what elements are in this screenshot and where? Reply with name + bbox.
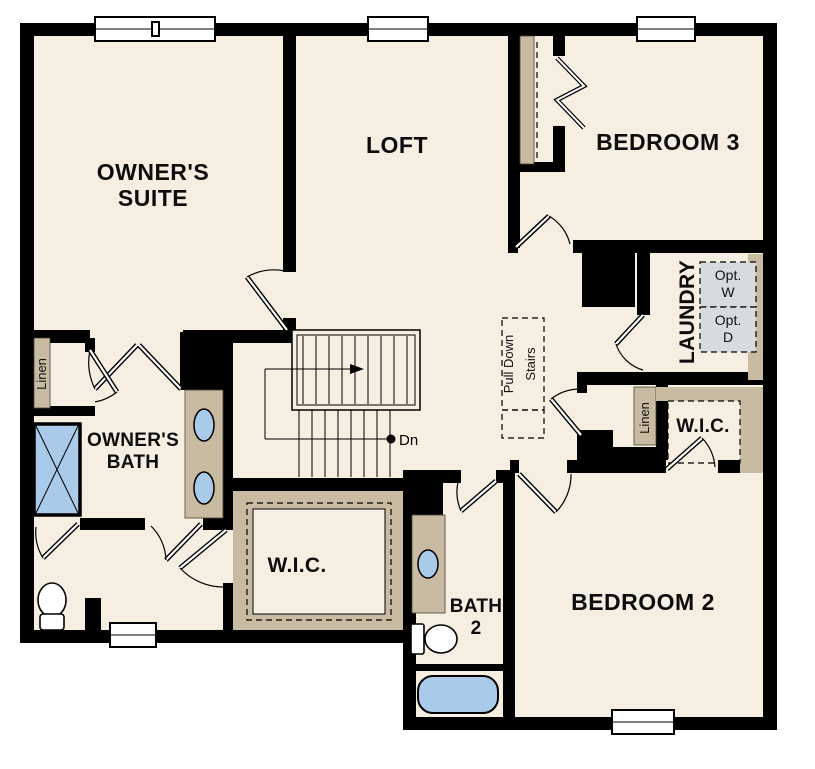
laundry-appliances: Opt. W Opt. D bbox=[700, 262, 756, 352]
linen-bath-label: Linen bbox=[34, 358, 49, 390]
window-icon bbox=[95, 17, 215, 41]
bedroom3-closet-shelf bbox=[520, 36, 534, 164]
pull-down-stairs-label-line1: Pull Down bbox=[501, 335, 516, 394]
window-icon bbox=[637, 17, 695, 41]
bedroom3-label: BEDROOM 3 bbox=[596, 129, 740, 155]
washer-option-box: Opt. W bbox=[700, 262, 756, 307]
laundry-label: LAUNDRY bbox=[676, 260, 699, 364]
window-icon bbox=[612, 710, 674, 734]
wic-owners-label: W.I.C. bbox=[268, 554, 327, 577]
owners-bath-label-line2: BATH bbox=[107, 452, 160, 473]
linen-hall-label: Linen bbox=[637, 402, 652, 434]
bath2-label-line2: 2 bbox=[471, 618, 482, 639]
washer-option-label-line1: Opt. bbox=[715, 267, 741, 283]
owners-suite-label-line2: SUITE bbox=[118, 185, 188, 211]
owners-bath-label-line1: OWNER'S bbox=[87, 430, 179, 451]
floor-plan-svg: Dn Pull Down Stairs bbox=[0, 0, 815, 769]
toilet-icon bbox=[38, 583, 66, 630]
sink-basin-icon bbox=[194, 409, 214, 441]
bath2-label-line1: BATH bbox=[450, 596, 503, 617]
loft-label: LOFT bbox=[366, 132, 428, 158]
owners-suite-label-line1: OWNER'S bbox=[97, 159, 209, 185]
window-icon bbox=[368, 17, 428, 41]
floor-plan: Dn Pull Down Stairs bbox=[0, 0, 815, 769]
dryer-option-label-line1: Opt. bbox=[715, 312, 741, 328]
shower-stall-icon bbox=[34, 424, 80, 515]
bathtub-icon bbox=[418, 676, 498, 713]
washer-option-label-line2: W bbox=[721, 284, 735, 300]
dryer-option-label-line2: D bbox=[723, 329, 733, 345]
wic-bedroom2-label: W.I.C. bbox=[676, 416, 730, 437]
dryer-option-box: Opt. D bbox=[700, 307, 756, 352]
sink-basin-icon bbox=[194, 472, 214, 504]
bedroom2-label: BEDROOM 2 bbox=[571, 589, 715, 615]
window-icon bbox=[110, 623, 156, 647]
stairs-down-label: Dn bbox=[399, 432, 418, 449]
sink-basin-icon bbox=[418, 550, 438, 578]
toilet-icon bbox=[411, 624, 457, 654]
pull-down-stairs-label-line2: Stairs bbox=[523, 347, 538, 381]
